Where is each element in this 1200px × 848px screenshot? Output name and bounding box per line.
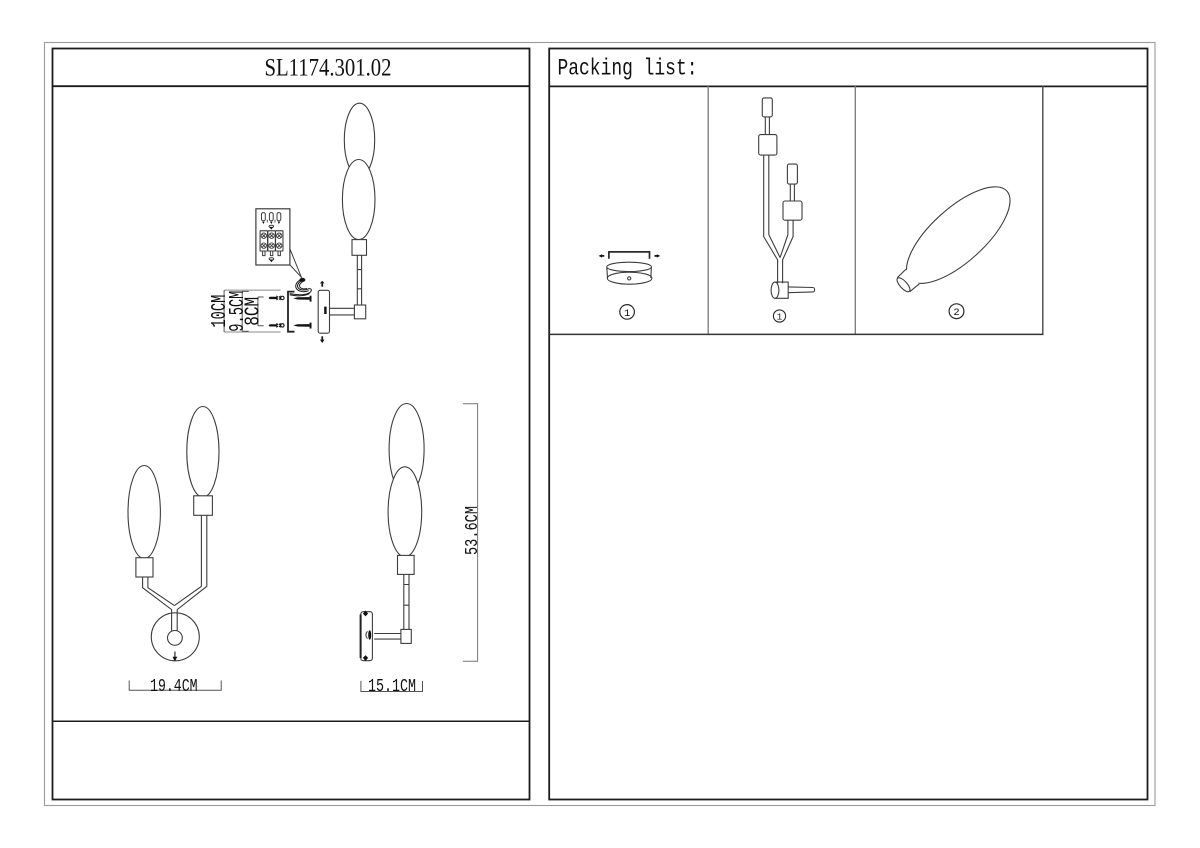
svg-text:53.6CM: 53.6CM [463, 506, 483, 555]
svg-text:2: 2 [953, 307, 959, 319]
svg-text:SL1174.301.02: SL1174.301.02 [265, 53, 392, 82]
svg-text:1: 1 [624, 308, 630, 320]
svg-text:Packing list:: Packing list: [558, 55, 698, 82]
svg-text:8CM: 8CM [242, 297, 266, 326]
svg-text:15.1CM: 15.1CM [368, 677, 416, 697]
svg-text:19.4CM: 19.4CM [150, 677, 198, 697]
svg-text:1: 1 [777, 312, 782, 322]
